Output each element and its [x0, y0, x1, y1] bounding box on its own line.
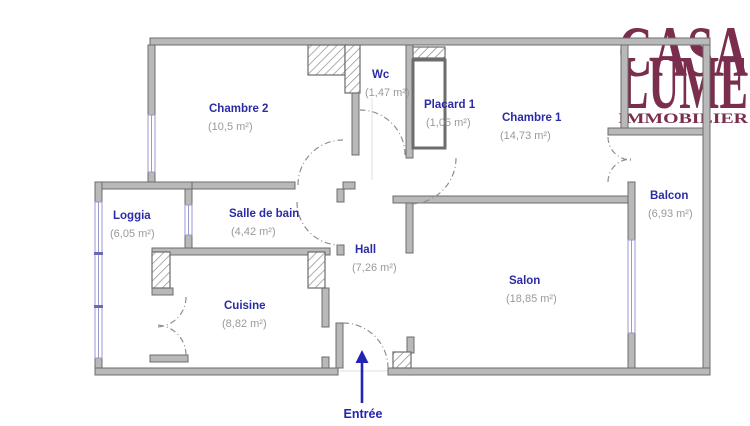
- room-label-chambre2: Chambre 2: [209, 103, 268, 115]
- pillar-hatch-loggia: [152, 252, 170, 288]
- room-label-cuisine: Cuisine: [224, 300, 266, 312]
- agency-logo: CASA LUME IMMOBILIER: [618, 12, 748, 127]
- pillar-hatch-entrance: [393, 352, 411, 368]
- wall-exterior-bottom-right: [388, 368, 710, 375]
- wall-cuisine-right: [322, 288, 329, 327]
- wall-balcon-top: [608, 128, 703, 135]
- wall-chambre2-bottom: [192, 182, 295, 189]
- room-area-placard1: (1,05 m²): [426, 117, 471, 129]
- room-area-cuisine: (8,82 m²): [222, 318, 267, 330]
- wall-loggia-top: [102, 182, 192, 189]
- room-label-hall: Hall: [355, 244, 376, 256]
- wall-loggia-cuisine-top-stub: [152, 288, 173, 295]
- room-area-salle-de-bain: (4,42 m²): [231, 226, 276, 238]
- duct-hatch-chambre2: [308, 45, 345, 75]
- room-area-hall: (7,26 m²): [352, 262, 397, 274]
- room-area-chambre2: (10,5 m²): [208, 121, 253, 133]
- door-balcon-top-leaf: [608, 137, 631, 160]
- entrance-label: Entrée: [344, 407, 383, 421]
- window-tick-1: [94, 252, 103, 255]
- door-salle-de-bain: [297, 202, 340, 245]
- room-label-salon: Salon: [509, 275, 540, 287]
- wall-chambre1-right: [621, 45, 628, 128]
- entrance-marker: Entrée: [344, 350, 383, 421]
- pillar-hatch-hall: [308, 252, 325, 288]
- wall-exterior-right: [703, 45, 710, 375]
- wall-exterior-bottom-left: [95, 368, 338, 375]
- wall-hinge-block: [343, 182, 355, 189]
- wall-left-lower-a: [95, 182, 102, 202]
- wall-sdb-right-bottom: [337, 245, 344, 255]
- wall-sdb-right-top: [337, 189, 344, 202]
- wall-wc-left: [352, 92, 359, 155]
- room-area-loggia: (6,05 m²): [110, 228, 155, 240]
- room-area-chambre1: (14,73 m²): [500, 130, 551, 142]
- wall-entrance-left: [336, 323, 343, 368]
- room-label-chambre1: Chambre 1: [502, 112, 562, 124]
- wall-left-upper-a: [148, 45, 155, 115]
- door-loggia-bottom-leaf: [156, 325, 186, 355]
- door-balcon-bottom-leaf: [608, 159, 631, 182]
- room-label-placard1: Placard 1: [424, 99, 476, 111]
- door-wc: [360, 110, 405, 155]
- wall-sdb-bottom: [152, 248, 330, 255]
- wall-loggia-cuisine-bottom-stub: [150, 355, 188, 362]
- wall-balcon-inner-bottom: [628, 333, 635, 368]
- room-area-wc: (1,47 m²): [365, 87, 410, 99]
- room-label-salle-de-bain: Salle de bain: [229, 208, 299, 220]
- wall-entrance-stub: [322, 357, 329, 368]
- floor-plan-drawing: CASA LUME IMMOBILIER: [0, 0, 750, 426]
- duct-hatch-wc: [345, 45, 360, 93]
- door-chambre2: [298, 140, 343, 185]
- room-label-wc: Wc: [372, 69, 390, 81]
- wall-left-upper-b: [148, 172, 155, 182]
- windows: [94, 115, 635, 358]
- entrance-arrow-head: [356, 350, 369, 363]
- door-loggia-top-leaf: [156, 297, 186, 327]
- room-area-salon: (18,85 m²): [506, 293, 557, 305]
- wall-salon-entrance-stub: [407, 337, 414, 353]
- room-label-loggia: Loggia: [113, 210, 151, 222]
- room-area-balcon: (6,93 m²): [648, 208, 693, 220]
- wall-balcon-inner-top: [628, 182, 635, 240]
- room-label-balcon: Balcon: [650, 190, 688, 202]
- wall-sdb-left-top: [185, 189, 192, 205]
- window-tick-2: [94, 305, 103, 308]
- logo-text-immobilier: IMMOBILIER: [618, 111, 748, 127]
- wall-exterior-top: [150, 38, 710, 45]
- duct-hatch-placard: [413, 47, 445, 58]
- wall-sdb-left-bottom: [185, 235, 192, 248]
- wall-left-lower-b: [95, 358, 102, 368]
- floor-plan-page: CASA LUME IMMOBILIER: [0, 0, 750, 426]
